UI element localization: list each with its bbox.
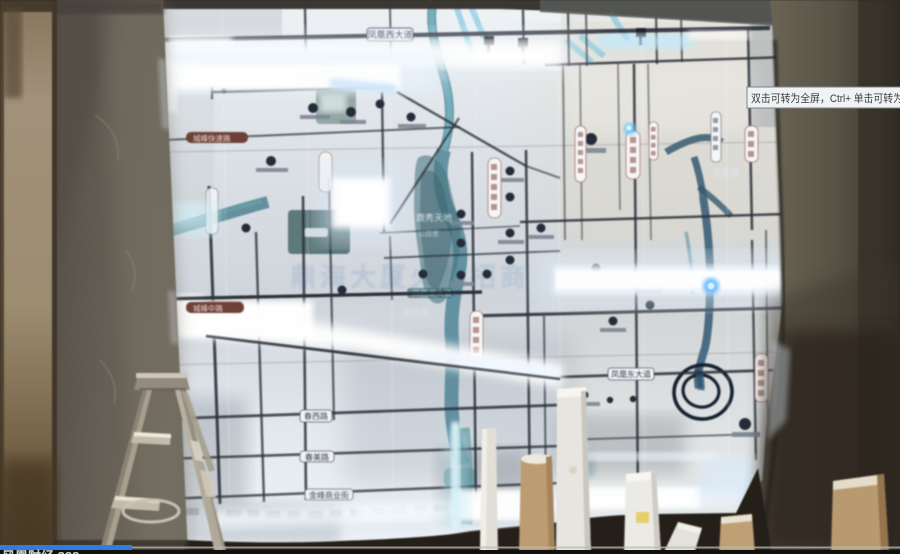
svg-text:风凰财经 888 ●: 风凰财经 888 ● (2, 549, 91, 554)
svg-text:公园里: 公园里 (418, 230, 439, 238)
svg-text:城峰中路: 城峰中路 (193, 303, 223, 313)
svg-text:凤栖湖: 凤栖湖 (402, 307, 429, 318)
svg-text:凤凰东大道: 凤凰东大道 (611, 369, 651, 379)
svg-text:双击可转为全屏，Ctrl+ 单击可转为: 双击可转为全屏，Ctrl+ 单击可转为 (751, 92, 900, 105)
svg-text:鼎秀天地: 鼎秀天地 (416, 212, 452, 223)
svg-text:鼎海大厦火热招商: 鼎海大厦火热招商 (290, 262, 530, 292)
svg-text:沈发湖: 沈发湖 (712, 167, 739, 178)
svg-text:春西路: 春西路 (304, 411, 328, 421)
svg-text:春美路: 春美路 (305, 452, 329, 462)
svg-text:城峰快速路: 城峰快速路 (193, 133, 231, 143)
svg-text:金峰商业街: 金峰商业街 (309, 490, 349, 500)
